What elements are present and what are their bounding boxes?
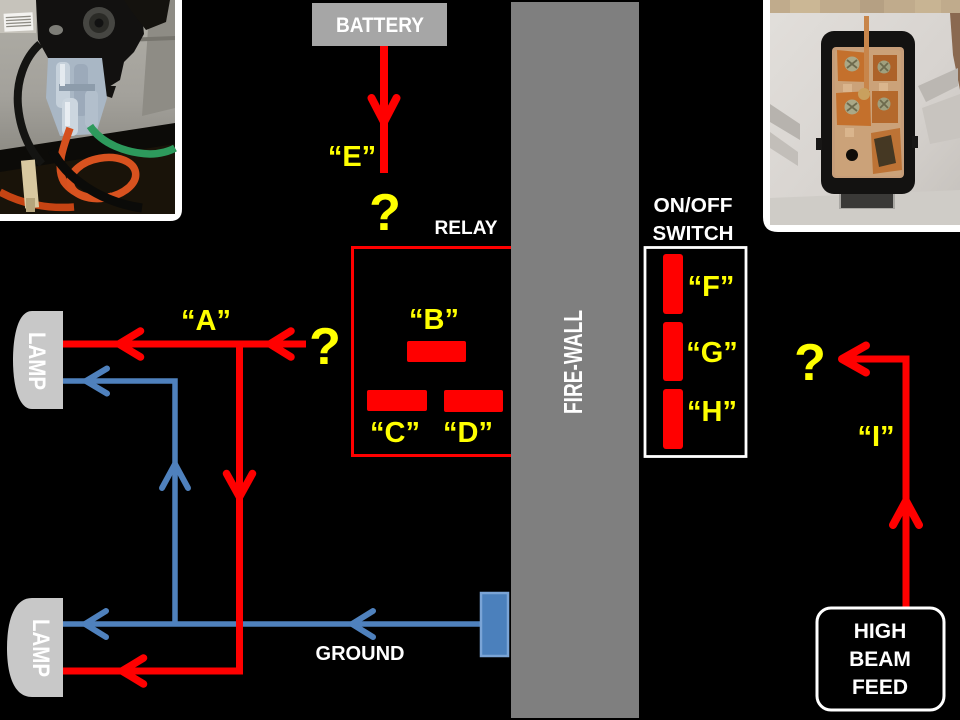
svg-text:FEED: FEED bbox=[852, 676, 908, 699]
svg-text:“I”: “I” bbox=[857, 421, 894, 453]
svg-text:“H”: “H” bbox=[687, 396, 737, 428]
svg-text:GROUND: GROUND bbox=[316, 643, 405, 665]
svg-text:“F”: “F” bbox=[688, 271, 735, 303]
svg-text:FIRE-WALL: FIRE-WALL bbox=[558, 310, 588, 414]
svg-text:BATTERY: BATTERY bbox=[336, 14, 424, 37]
svg-text:LAMP: LAMP bbox=[27, 619, 54, 677]
svg-text:“A”: “A” bbox=[181, 305, 231, 337]
svg-text:RELAY: RELAY bbox=[435, 218, 498, 239]
svg-text:“E”: “E” bbox=[328, 141, 376, 173]
svg-text:ON/OFF: ON/OFF bbox=[654, 195, 733, 217]
svg-text:?: ? bbox=[369, 184, 401, 242]
svg-text:“C”: “C” bbox=[370, 417, 420, 449]
svg-text:SWITCH: SWITCH bbox=[653, 223, 734, 245]
svg-text:“D”: “D” bbox=[443, 417, 493, 449]
svg-text:?: ? bbox=[309, 318, 341, 376]
svg-text:?: ? bbox=[794, 334, 826, 392]
svg-text:“G”: “G” bbox=[686, 337, 738, 369]
svg-text:LAMP: LAMP bbox=[23, 332, 50, 390]
svg-text:BEAM: BEAM bbox=[849, 648, 911, 671]
svg-text:“B”: “B” bbox=[409, 304, 459, 336]
svg-text:HIGH: HIGH bbox=[854, 620, 907, 643]
